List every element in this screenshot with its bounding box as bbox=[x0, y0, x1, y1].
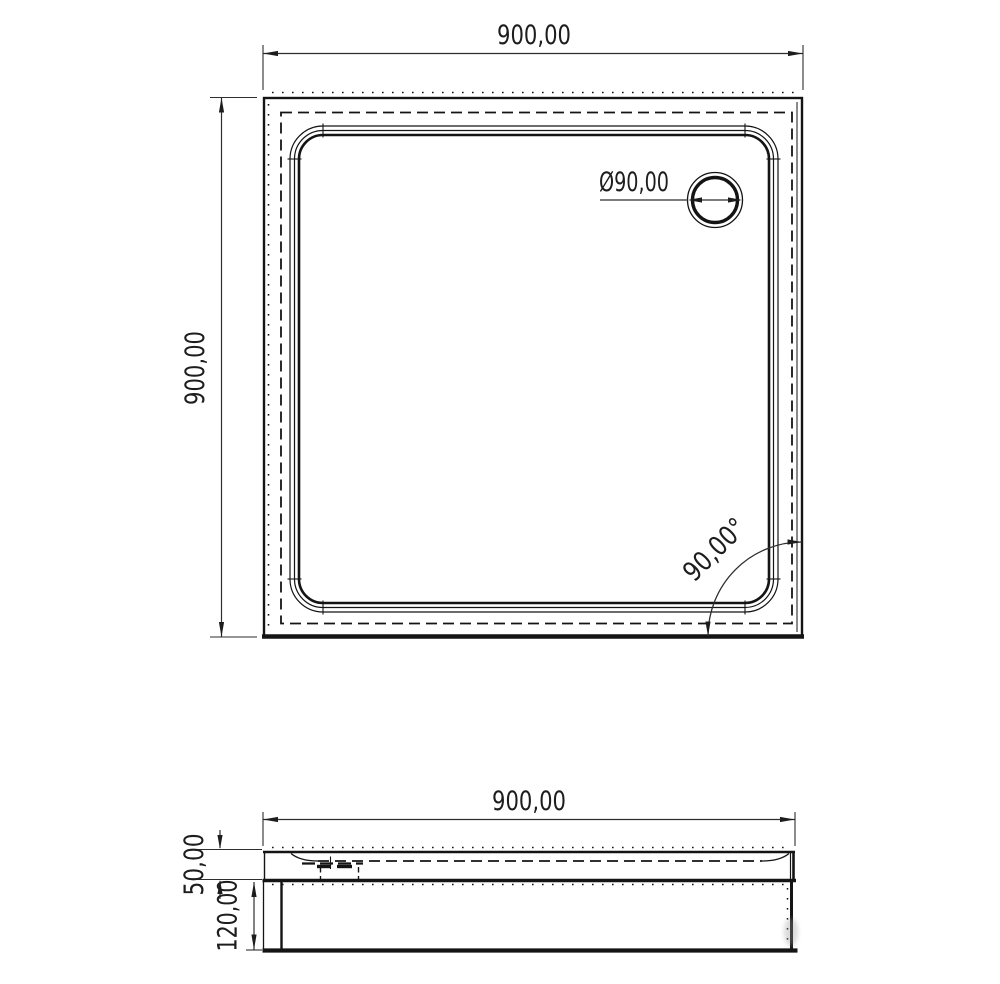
angle-dimension-label: 90,00° bbox=[677, 512, 753, 588]
dimension-arrow bbox=[263, 51, 278, 56]
base-height-dimension-label: 120,00 bbox=[213, 880, 244, 952]
top-width-dimension-label: 900,00 bbox=[497, 20, 571, 51]
base-height-dimension: 120,00 bbox=[213, 880, 263, 952]
drain-trap-detail bbox=[302, 857, 363, 880]
tray-height-dimension-label: 50,00 bbox=[179, 834, 210, 896]
side-tray-section bbox=[263, 848, 797, 881]
angle-dimension: 90,00° bbox=[677, 512, 802, 636]
dimension-arrow bbox=[263, 817, 278, 822]
left-height-dimension-label: 900,00 bbox=[180, 331, 211, 405]
dimension-arrow bbox=[780, 817, 795, 822]
side-base-section bbox=[263, 881, 798, 951]
dimension-arrow bbox=[688, 197, 702, 202]
basin-rim-inner bbox=[299, 135, 769, 603]
top-view: Ø90,00 90,00° 900,00 900,00 bbox=[180, 20, 804, 637]
dimension-arrow bbox=[788, 51, 803, 56]
side-view: 900,00 50,00 120,00 bbox=[179, 786, 798, 952]
basin-slope-left bbox=[291, 854, 318, 862]
technical-drawing: Ø90,00 90,00° 900,00 900,00 bbox=[0, 0, 1000, 984]
drain-dimension-label: Ø90,00 bbox=[599, 167, 669, 198]
top-width-dimension: 900,00 bbox=[263, 20, 803, 90]
dimension-arrow bbox=[219, 98, 224, 113]
basin-slope-right bbox=[762, 854, 789, 862]
dimension-arrow bbox=[251, 882, 256, 897]
side-width-dimension: 900,00 bbox=[263, 786, 795, 846]
left-height-dimension: 900,00 bbox=[180, 98, 257, 638]
drain: Ø90,00 bbox=[599, 167, 743, 228]
side-width-dimension-label: 900,00 bbox=[492, 786, 566, 817]
dimension-arrow bbox=[788, 539, 803, 544]
dimension-arrow bbox=[705, 622, 710, 637]
dimension-arrow bbox=[219, 622, 224, 637]
dimension-arrow bbox=[251, 935, 256, 950]
dimension-arrow bbox=[217, 835, 222, 849]
watermark-smudge bbox=[784, 918, 798, 946]
dimension-arrow bbox=[728, 197, 742, 202]
